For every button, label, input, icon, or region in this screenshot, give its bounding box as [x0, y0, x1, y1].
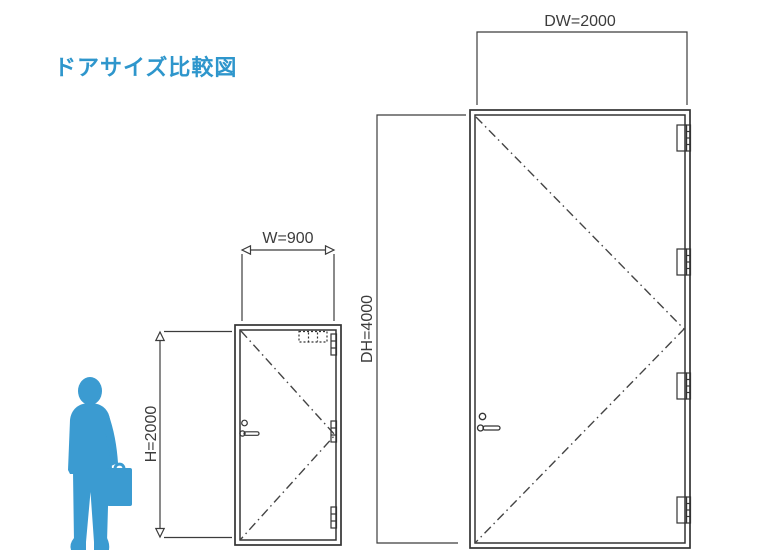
person-torso [68, 403, 112, 474]
lever-handle-icon [483, 426, 500, 430]
large-door-hinges [677, 125, 691, 523]
door-cylinder-icon [479, 413, 485, 419]
hinge-icon [677, 249, 691, 275]
large-door-width-dimension: DW=2000 [477, 13, 687, 105]
large-door-frame [470, 110, 690, 548]
person-silhouette-icon [68, 377, 132, 550]
large-door [470, 110, 691, 548]
height-dimension-label: DH=4000 [359, 295, 376, 363]
small-door-handle [240, 420, 259, 436]
arrowhead-up [156, 332, 164, 341]
person-legs [73, 472, 109, 542]
person-briefcase [107, 468, 132, 506]
large-door-handle [478, 413, 501, 431]
arrowhead-right [326, 246, 335, 254]
hinge-icon [677, 497, 691, 523]
person-right-shoe [94, 538, 109, 550]
person-left-shoe [70, 538, 86, 550]
small-door-width-dimension: W=900 [242, 230, 334, 321]
large-door-leaf [475, 115, 685, 543]
diagram-drawing: W=900 H=2000 [0, 0, 760, 560]
width-dimension-label: W=900 [262, 230, 313, 247]
hinge-icon [677, 125, 691, 151]
width-dimension-label: DW=2000 [544, 13, 616, 30]
diagram-canvas: ドアサイズ比較図 [0, 0, 760, 560]
lever-handle-icon [244, 432, 259, 436]
small-door [235, 325, 341, 545]
arrowhead-down [156, 529, 164, 538]
height-dimension-label: H=2000 [143, 406, 160, 463]
large-door-height-dimension: DH=4000 [359, 115, 466, 543]
small-door-height-dimension: H=2000 [143, 332, 232, 538]
arrowhead-left [242, 246, 251, 254]
hinge-icon [677, 373, 691, 399]
door-cylinder-icon [242, 420, 248, 426]
large-door-swing-line [476, 117, 684, 542]
person-head [78, 377, 102, 405]
small-door-vent-grille [299, 332, 327, 343]
